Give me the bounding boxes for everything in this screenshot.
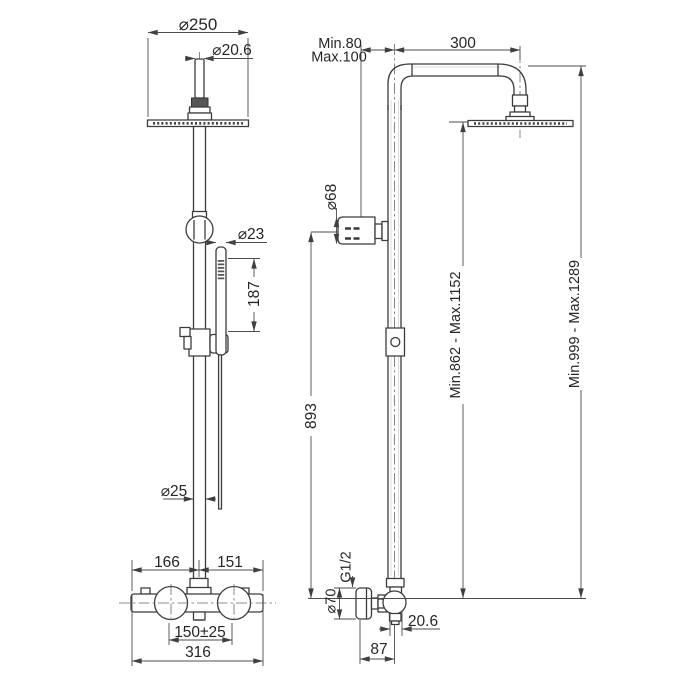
label-valve-barrel-diameter: ⌀70 [324,589,340,614]
label-valve-left-span: 166 [154,554,180,571]
label-total-height-range: Min.999 - Max.1289 [567,260,583,388]
front-view [119,52,276,623]
diverter-knob-side [338,217,375,244]
shower-arm-inner [401,76,514,110]
valve-barrel-side [356,588,372,619]
head-nut-side [513,95,528,106]
knob-mount-nut [382,222,388,241]
handshower-wand [216,247,226,355]
shower-column-drawing: ⌀250 ⌀20.6 ⌀23 ⌀25 166 151 150±25 316 Mi… [0,0,700,700]
slider-block-front [189,329,210,356]
valve-body-side [383,591,406,614]
label-knob-diameter: ⌀68 [323,184,340,211]
label-riser-height: 893 [303,403,320,429]
label-valve-right-span: 151 [217,554,243,571]
column-base-nut [190,579,208,589]
label-handshower-length: 187 [246,281,263,307]
label-arm-reach: 300 [450,35,476,52]
label-outlet-width: 20.6 [408,613,438,630]
label-handshower-diameter: ⌀23 [238,226,265,243]
head-collar-front [188,113,212,120]
label-wall-offset-max: Max.100 [311,50,367,66]
left-union-tab [141,588,150,594]
head-nut-front [192,98,209,107]
label-head-height-range: Min.862 - Max.1152 [448,271,464,398]
label-valve-total-width: 316 [185,644,211,661]
diverter-knob-front [186,216,213,243]
label-head-diameter: ⌀250 [179,15,218,34]
riser-base-nut [387,579,405,588]
slider-screw [391,338,400,347]
label-pipe-diameter-top: ⌀20.6 [212,42,252,59]
ceiling-pipe-front [195,59,204,98]
valve-outlet-front [194,612,206,620]
label-wall-to-center: 87 [370,641,387,658]
label-inlet-centers: 150±25 [174,624,226,641]
shower-arm-outer [388,64,526,110]
label-column-diameter: ⌀25 [161,483,188,500]
technical-drawing-canvas: ⌀250 ⌀20.6 ⌀23 ⌀25 166 151 150±25 316 Mi… [0,0,700,700]
shower-hose [219,355,222,509]
label-inlet-thread: G1/2 [339,551,355,582]
slider-lever-front [180,328,190,337]
valve-outlet-side [390,614,402,622]
